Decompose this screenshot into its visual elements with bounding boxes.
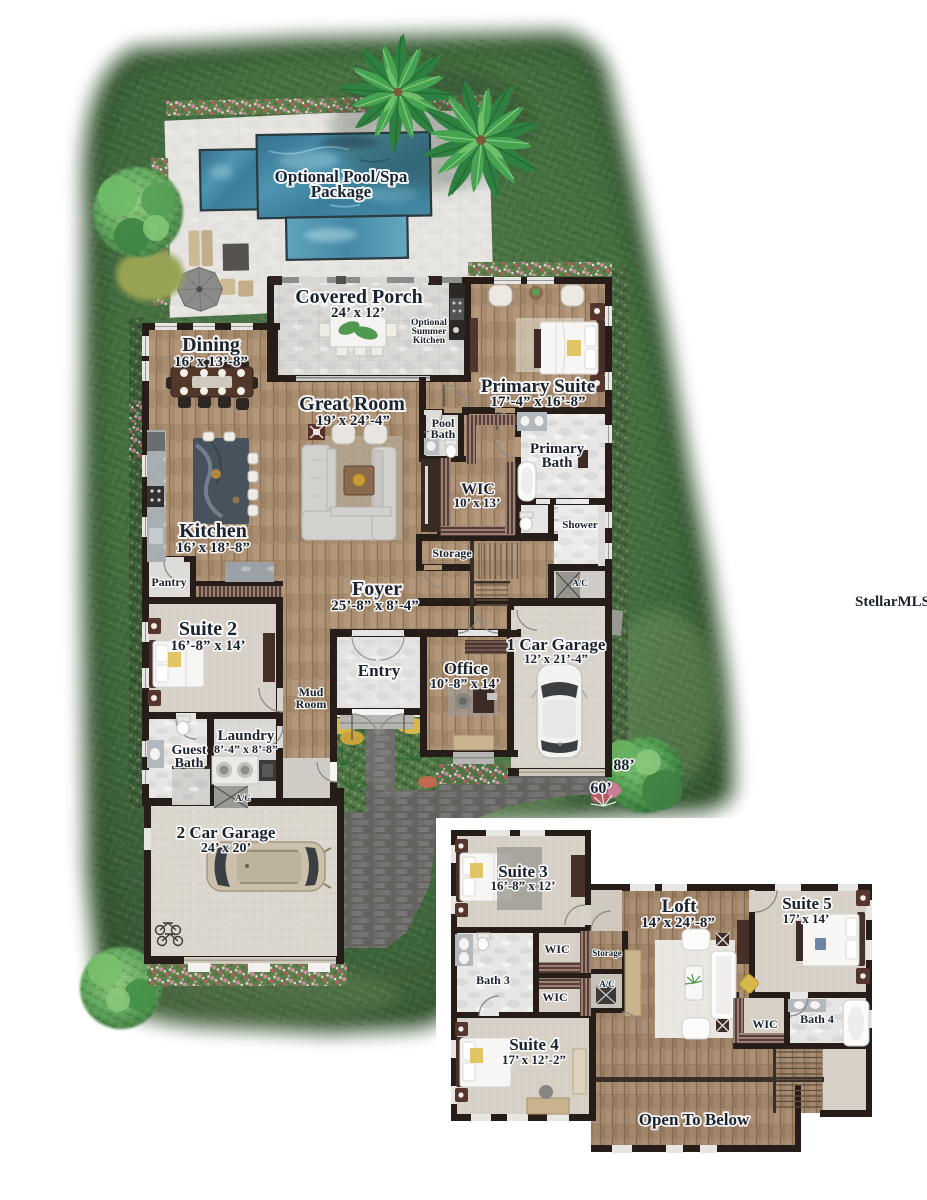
svg-text:A/C: A/C <box>235 793 251 803</box>
svg-text:Entry: Entry <box>358 661 401 680</box>
svg-text:17’ x 14’: 17’ x 14’ <box>783 911 830 926</box>
svg-text:10’-8” x 14’: 10’-8” x 14’ <box>430 677 500 692</box>
svg-text:StellarMLS: StellarMLS <box>855 594 927 610</box>
svg-text:A/C: A/C <box>599 979 615 989</box>
svg-text:Office: Office <box>444 659 489 678</box>
svg-text:25’-8” x 8’-4”: 25’-8” x 8’-4” <box>331 598 418 614</box>
svg-text:16’ x 18’-8”: 16’ x 18’-8” <box>176 540 250 556</box>
svg-text:Kitchen: Kitchen <box>413 336 446 346</box>
svg-text:17’-4” x 16’-8”: 17’-4” x 16’-8” <box>491 394 586 410</box>
svg-text:Package: Package <box>311 182 372 201</box>
svg-text:Shower: Shower <box>562 519 598 531</box>
svg-text:Bath 3: Bath 3 <box>476 973 510 987</box>
svg-text:Pantry: Pantry <box>151 575 186 589</box>
svg-text:Storage: Storage <box>432 546 472 560</box>
svg-text:2 Car Garage: 2 Car Garage <box>177 823 276 842</box>
svg-text:Foyer: Foyer <box>352 578 402 600</box>
svg-text:Dining: Dining <box>182 334 240 356</box>
svg-text:Bath: Bath <box>431 427 456 441</box>
svg-text:Room: Room <box>296 697 327 711</box>
svg-text:88’: 88’ <box>613 757 634 774</box>
svg-text:24’ x 20’: 24’ x 20’ <box>201 841 251 856</box>
svg-text:14’ x 24’-8”: 14’ x 24’-8” <box>641 915 715 931</box>
svg-text:Loft: Loft <box>662 896 698 917</box>
svg-text:24’ x 12’: 24’ x 12’ <box>331 305 385 321</box>
svg-text:Suite 2: Suite 2 <box>179 618 237 640</box>
svg-text:10’ x 13’: 10’ x 13’ <box>454 495 501 510</box>
svg-text:Bath 4: Bath 4 <box>800 1012 834 1026</box>
svg-text:Great Room: Great Room <box>299 393 405 415</box>
svg-text:Storage: Storage <box>592 948 622 958</box>
svg-text:19’ x 24’-4”: 19’ x 24’-4” <box>316 413 390 429</box>
svg-text:Kitchen: Kitchen <box>179 520 247 542</box>
svg-text:Open To Below: Open To Below <box>639 1110 750 1129</box>
svg-text:WIC: WIC <box>752 1017 777 1031</box>
svg-text:WIC: WIC <box>542 990 567 1004</box>
svg-text:16’-8” x 14’: 16’-8” x 14’ <box>171 638 246 654</box>
svg-text:17’ x 12’-2”: 17’ x 12’-2” <box>502 1052 566 1067</box>
svg-text:16’ x 13’-8”: 16’ x 13’-8” <box>174 354 248 370</box>
svg-text:12’ x 21’-4”: 12’ x 21’-4” <box>524 651 588 666</box>
svg-text:A/C: A/C <box>572 578 588 588</box>
svg-text:16’-8” x 12’: 16’-8” x 12’ <box>491 878 556 893</box>
svg-text:WIC: WIC <box>544 942 569 956</box>
svg-text:Bath: Bath <box>542 455 574 471</box>
svg-text:60’: 60’ <box>590 780 611 797</box>
svg-text:8’-4” x 8’-8”: 8’-4” x 8’-8” <box>214 742 278 756</box>
svg-text:Bath: Bath <box>175 756 204 771</box>
